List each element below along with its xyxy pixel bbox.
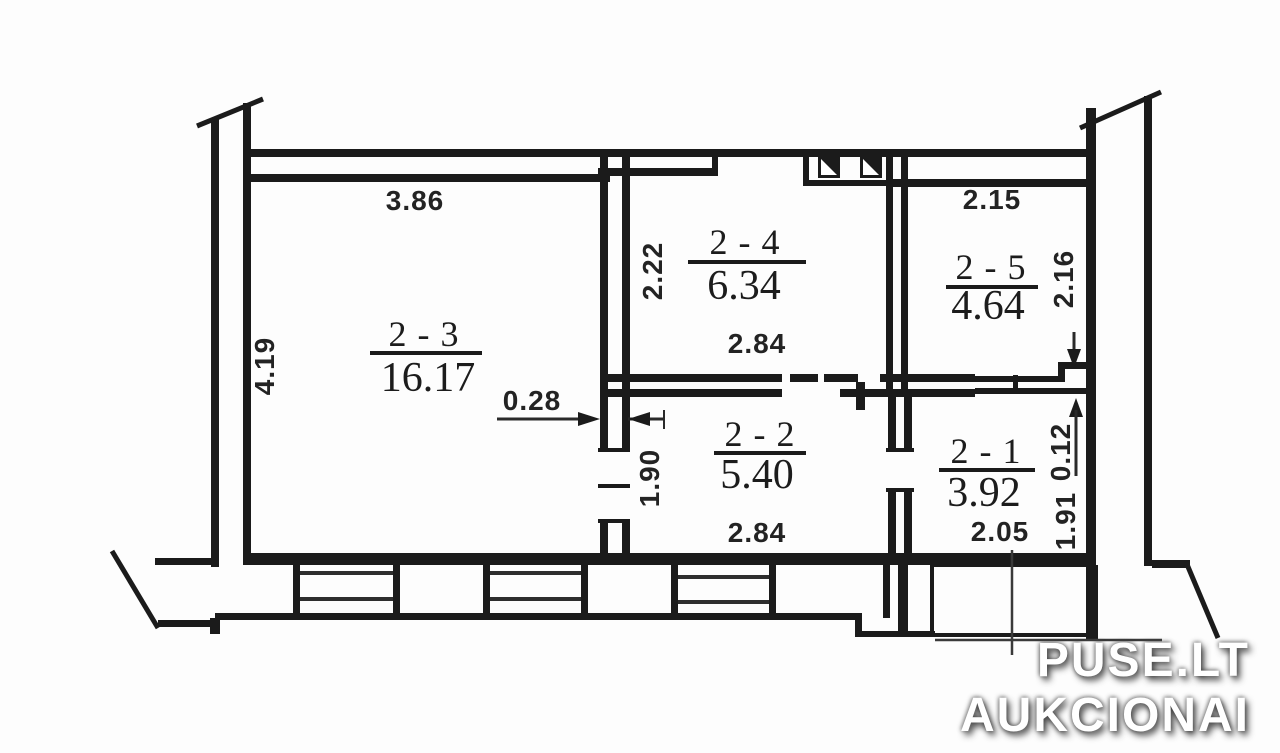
window-icon bbox=[678, 575, 769, 604]
dim-room22-width: 2.84 bbox=[728, 517, 787, 548]
dim-room21-width: 2.05 bbox=[971, 516, 1030, 547]
vent-niche bbox=[803, 152, 893, 186]
room-2-4-id: 2 - 4 bbox=[710, 222, 781, 262]
wall-break-line-top-left bbox=[197, 99, 263, 126]
dim-room22-height: 1.90 bbox=[634, 449, 665, 508]
dim-room25-height: 2.16 bbox=[1048, 250, 1079, 309]
wall-break-line-bottom-left bbox=[112, 551, 158, 628]
watermark: PUSE.LT AUKCIONAI bbox=[960, 633, 1250, 743]
dim-wall-thickness: 0.28 bbox=[503, 385, 562, 416]
floor-plan-page: 2 - 3 16.17 2 - 4 6.34 2 - 5 4.64 2 - 2 … bbox=[0, 0, 1280, 753]
watermark-line2: AUKCIONAI bbox=[960, 688, 1250, 743]
dim-arrow-left bbox=[628, 412, 650, 426]
dim-room25-width: 2.15 bbox=[963, 184, 1022, 215]
bottom-wall-windows bbox=[215, 553, 1098, 640]
dim-room24-height: 2.22 bbox=[637, 242, 668, 301]
wall-break-line-bottom-right bbox=[1186, 562, 1218, 638]
room-2-3-area: 16.17 bbox=[381, 355, 476, 401]
dim-arrow-right bbox=[578, 412, 600, 426]
dim-wall-gap: 0.12 bbox=[1045, 423, 1076, 482]
room-2-1-id: 2 - 1 bbox=[951, 431, 1022, 471]
window-icon bbox=[490, 571, 581, 601]
dim-room21-height: 1.91 bbox=[1050, 492, 1081, 551]
room-labels: 2 - 3 16.17 2 - 4 6.34 2 - 5 4.64 2 - 2 … bbox=[370, 222, 1038, 516]
room-2-1-area: 3.92 bbox=[947, 470, 1021, 516]
room-2-5-area: 4.64 bbox=[951, 283, 1025, 329]
vent-shaft-icon bbox=[818, 156, 840, 178]
window-icon bbox=[300, 571, 393, 601]
room-2-3-id: 2 - 3 bbox=[389, 314, 460, 354]
room-2-2-area: 5.40 bbox=[720, 452, 794, 498]
room-2-2-id: 2 - 2 bbox=[725, 414, 796, 454]
dim-room24-width: 2.84 bbox=[728, 328, 787, 359]
room-2-4-area: 6.34 bbox=[707, 263, 781, 309]
room-2-5-id: 2 - 5 bbox=[956, 247, 1027, 287]
dim-room23-height: 4.19 bbox=[249, 337, 280, 396]
watermark-line1: PUSE.LT bbox=[960, 633, 1250, 688]
vent-shaft-icon bbox=[860, 156, 882, 178]
dim-room23-width: 3.86 bbox=[386, 185, 445, 216]
